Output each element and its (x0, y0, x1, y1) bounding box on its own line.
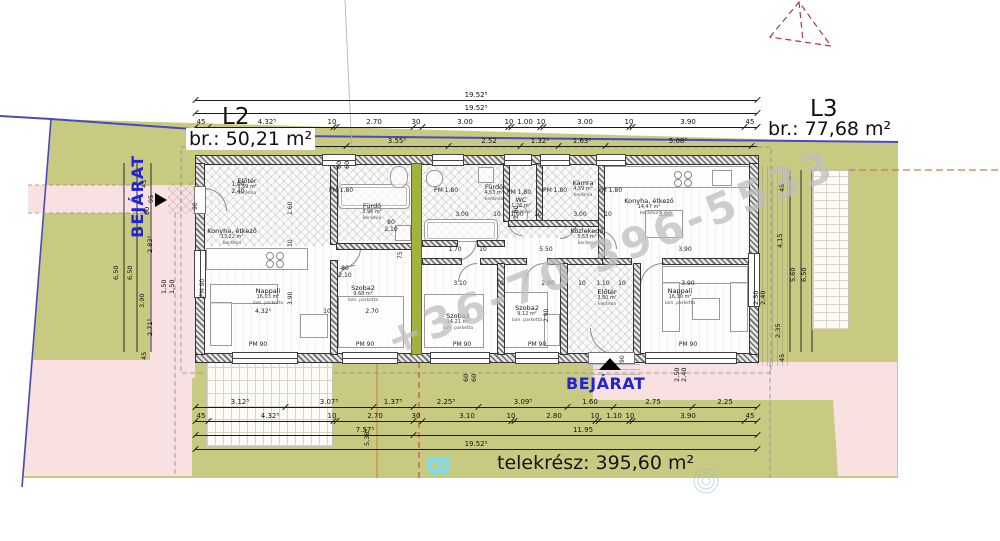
entrance-arrow-bottom (599, 358, 621, 370)
washing-machine-l2 (395, 225, 411, 241)
entrance-label-left: BEJÁRAT (128, 155, 147, 238)
wall-l2-b (330, 260, 338, 355)
window-left-1 (194, 250, 206, 298)
porch-hatch-left (168, 182, 195, 214)
table-l2 (300, 314, 328, 338)
hob-burner-4 (674, 171, 682, 179)
window-bottom-1 (232, 352, 298, 364)
door-l2-entrance (194, 186, 206, 214)
hob-burner-2 (266, 260, 274, 268)
washing-machine-l3 (478, 167, 494, 183)
unit-l3-area: br.: 77,68 m² (768, 118, 891, 140)
wall-l3-wc-left (503, 163, 510, 222)
window-top-2 (432, 154, 464, 166)
sofa-l2-b (210, 302, 232, 346)
pink-area-bottom-left (24, 360, 192, 476)
sofa-l3-b (662, 282, 680, 332)
sink-l3 (426, 170, 443, 187)
wall-l3-corridor-a (422, 258, 462, 265)
window-top-3 (504, 154, 532, 166)
unit-l2-area: br.: 50,21 m² (186, 128, 315, 150)
sink-l2 (390, 166, 408, 188)
terrace-bottom-left (206, 361, 333, 447)
hob-burner-1 (276, 252, 284, 260)
plot-area-label: telekrész: 395,60 m² (497, 452, 694, 474)
coffee-table-l3 (692, 298, 720, 320)
sofa-l2-a (210, 284, 278, 304)
kitchen-counter-l2 (206, 248, 308, 270)
wall-l3-nappali-b (662, 258, 751, 265)
entrance-arrow-left (155, 193, 167, 207)
unit-l2-label: L2 (222, 104, 249, 130)
window-bottom-3 (430, 352, 490, 364)
wall-l2-a (330, 163, 338, 245)
window-bottom-2 (342, 352, 398, 364)
sofa-l3-c (730, 282, 748, 332)
b-watermark: B (420, 454, 455, 477)
wall-l3-bath-a (422, 240, 458, 247)
window-top-1 (322, 154, 356, 166)
wall-l3-wc-right (536, 163, 543, 222)
roof-outline-red (770, 2, 831, 46)
hob-burner-5 (684, 171, 692, 179)
window-right-1 (748, 253, 760, 307)
wall-l3-bath-b (477, 240, 505, 247)
window-bottom-5 (645, 352, 737, 364)
hob-burner-7 (684, 179, 692, 187)
tree-symbol (694, 469, 718, 493)
hob-burner-0 (266, 252, 274, 260)
wall-outer-top (195, 155, 759, 165)
entrance-label-bottom: BEJÁRAT (566, 374, 645, 393)
bathtub-l3 (424, 219, 498, 242)
wall-l3-entry-right (633, 263, 641, 355)
hob-burner-3 (276, 260, 284, 268)
window-top-5 (596, 154, 626, 166)
hob-burner-6 (674, 179, 682, 187)
wall-l2-c (336, 243, 413, 250)
window-top-4 (540, 154, 570, 166)
site-plan-canvas: 19.52⁵19.52⁵454.32⁵102.70303.00101.00103… (0, 0, 1000, 541)
desk-l3 (544, 314, 560, 346)
wall-l3-kamra-bottom (508, 220, 600, 227)
window-bottom-4 (515, 352, 559, 364)
